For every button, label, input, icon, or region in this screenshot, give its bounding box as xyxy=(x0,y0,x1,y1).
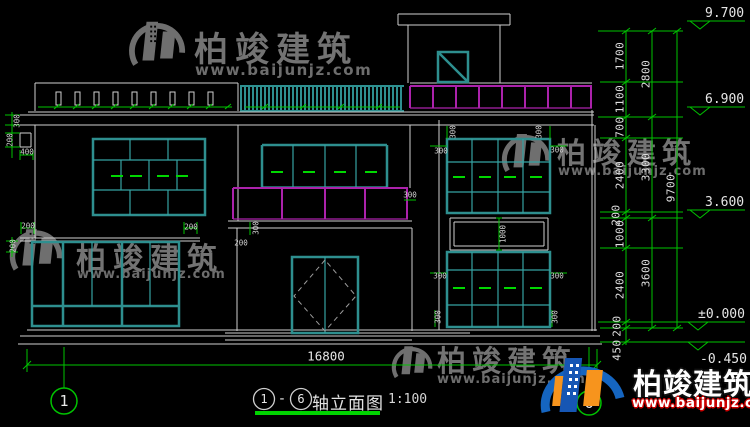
dim-label: 300 xyxy=(13,114,22,128)
dim-label: 1100 xyxy=(614,85,627,114)
dim-label: 400 xyxy=(20,148,34,157)
window-grids xyxy=(92,139,550,333)
dim-label: 2800 xyxy=(640,60,653,89)
dim-label: 300 xyxy=(434,147,448,156)
parapet-posts xyxy=(56,92,213,105)
dim-label: 700 xyxy=(614,116,627,137)
level-label: 9.700 xyxy=(705,6,744,21)
title-separator: - xyxy=(278,391,286,407)
level-label: 3.600 xyxy=(705,195,744,210)
dim-label: 200 xyxy=(9,239,18,253)
dim-label: 300 xyxy=(449,125,458,139)
dim-label: 1700 xyxy=(614,42,627,71)
dim-label: 1000 xyxy=(614,220,627,249)
drawing-scale: 1:100 xyxy=(388,392,427,407)
dim-label-overall-height: 9700 xyxy=(665,174,678,203)
dim-label: 300 xyxy=(550,146,564,155)
dim-label: 300 xyxy=(433,272,447,281)
dim-label: 300 xyxy=(551,310,560,324)
dim-label: 2400 xyxy=(614,161,627,190)
footer-logo: 柏竣建筑 www.baijunjz.com xyxy=(532,350,750,427)
dim-label: 3600 xyxy=(640,259,653,288)
building-outline xyxy=(18,14,602,344)
dim-label: 1000 xyxy=(499,225,508,243)
title-underline xyxy=(255,411,380,415)
dim-label: 2400 xyxy=(614,271,627,300)
dim-label: 300 xyxy=(252,221,261,235)
level-label: 6.900 xyxy=(705,92,744,107)
dim-label: 200 xyxy=(6,133,15,147)
dim-label: 300 xyxy=(550,272,564,281)
dim-label: 200 xyxy=(21,222,35,231)
axis-bubble-left-label: 1 xyxy=(59,392,68,410)
dim-label: 300 xyxy=(403,191,417,200)
title-axis-start: 1 xyxy=(260,392,267,406)
dim-label: 200 xyxy=(184,223,198,232)
dim-label: 3300 xyxy=(640,153,653,182)
footer-logo-icon xyxy=(532,350,632,423)
dim-label: 200 xyxy=(611,315,624,336)
dim-label: 300 xyxy=(535,125,544,139)
dim-label: 300 xyxy=(434,310,443,324)
level-label: ±0.000 xyxy=(698,307,745,322)
cad-elevation-screenshot: 柏竣建筑 www.baijunjz.com 柏竣建筑 www.baijunjz.… xyxy=(0,0,750,427)
dim-label-overall-width: 16800 xyxy=(307,349,345,364)
dim-label: 200 xyxy=(234,239,248,248)
footer-logo-url: www.baijunjz.com xyxy=(632,395,750,411)
title-axis-end: 6 xyxy=(297,392,304,406)
